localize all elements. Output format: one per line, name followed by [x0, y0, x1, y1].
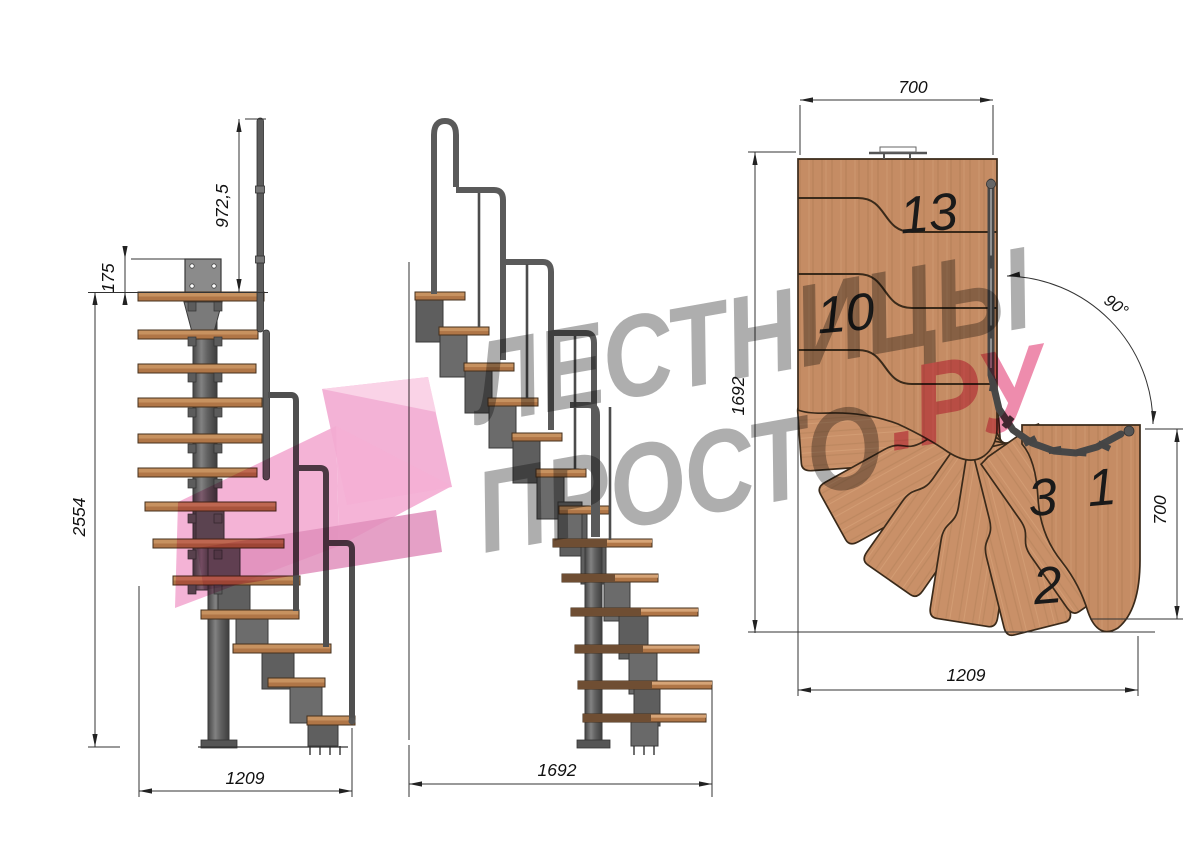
svg-text:2554: 2554 [69, 497, 89, 537]
svg-text:1692: 1692 [538, 760, 577, 780]
svg-text:700: 700 [1150, 495, 1170, 524]
svg-text:3: 3 [1026, 468, 1060, 528]
svg-text:1209: 1209 [226, 768, 265, 788]
svg-text:700: 700 [898, 77, 927, 97]
svg-text:1209: 1209 [947, 665, 986, 685]
svg-text:175: 175 [98, 263, 118, 292]
svg-text:1: 1 [1085, 458, 1119, 518]
svg-text:972,5: 972,5 [212, 184, 232, 228]
svg-text:2: 2 [1030, 556, 1065, 616]
